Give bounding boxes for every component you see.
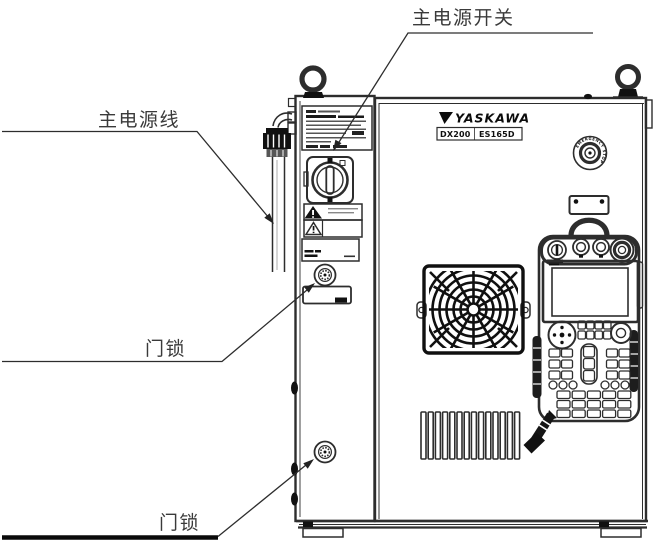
info-label (302, 239, 359, 261)
pendant-cable (524, 410, 558, 454)
door-lock-upper (315, 265, 336, 286)
cable-connector (263, 133, 291, 149)
pendant-round-key (611, 323, 631, 343)
vent-slots (421, 412, 520, 459)
fan-pattern (426, 262, 522, 358)
cabinet-base (296, 521, 648, 537)
pendant-strap-left (533, 336, 542, 398)
switch-handle (326, 166, 333, 194)
connector-flange (266, 128, 288, 133)
callout-main-power-cable: 主电源线 (2, 109, 274, 224)
foot-bolt (599, 522, 609, 528)
callout-door-lock-lower: 门锁 (2, 459, 314, 538)
fan-grille (417, 262, 530, 358)
model-label: DX200 ES165D (437, 128, 522, 141)
pendant-estop-button (611, 239, 634, 262)
yaskawa-mark-icon (439, 112, 453, 124)
pendant-hook (571, 220, 607, 236)
pendant-bracket (570, 196, 609, 214)
diagram: YASKAWA DX200 ES165D EMERGENCY STOP (0, 0, 664, 548)
pendant-screen (552, 268, 628, 316)
callout-label: 门锁 (145, 338, 186, 360)
eyebolt-left (302, 68, 324, 98)
left-foot (303, 529, 343, 538)
hinge-icon (291, 382, 298, 395)
callout-label: 主电源开关 (412, 7, 515, 29)
figure-canvas: YASKAWA DX200 ES165D EMERGENCY STOP (0, 0, 664, 548)
model-series-text: DX200 (440, 130, 471, 139)
teach-pendant (524, 196, 643, 454)
main-power-switch (304, 157, 353, 203)
model-code-text: ES165D (479, 130, 515, 139)
hinge-icon (291, 493, 298, 506)
door-lock-lower (315, 442, 336, 463)
brand-logo: YASKAWA (439, 111, 530, 126)
top-edge-screw (584, 94, 592, 99)
pendant-screen-bezel (543, 261, 638, 322)
pendant-keypad (549, 321, 632, 418)
callout-door-lock-upper: 门锁 (2, 283, 315, 362)
warning-label-2 (304, 220, 362, 237)
warning-label-1 (304, 204, 362, 220)
arrowhead-icon (303, 459, 314, 469)
foot-bolt (303, 522, 313, 528)
pendant-strap-right (630, 330, 639, 392)
emergency-stop-button: EMERGENCY STOP (574, 137, 607, 170)
callout-label: 门锁 (159, 512, 200, 534)
pendant-button (593, 239, 609, 258)
main-power-cable (263, 112, 296, 272)
eyebolt-right (613, 67, 643, 98)
callout-label: 主电源线 (98, 109, 180, 131)
pendant-button (573, 239, 589, 258)
brand-text: YASKAWA (455, 111, 530, 126)
right-foot (601, 529, 641, 538)
